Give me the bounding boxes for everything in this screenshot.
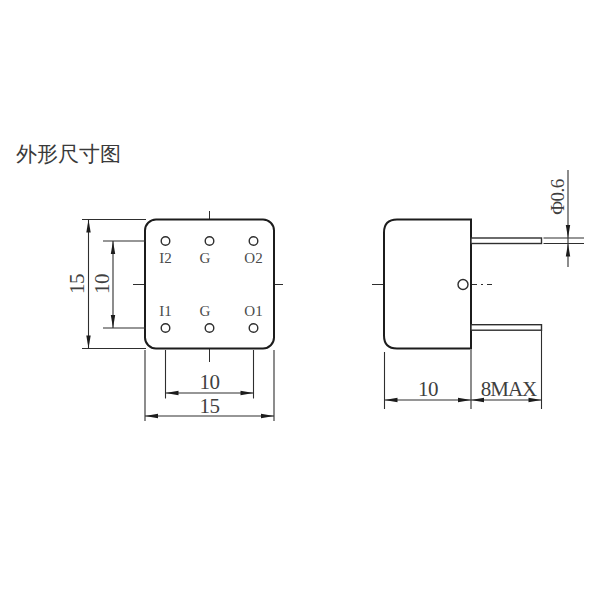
top-lead bbox=[471, 238, 542, 244]
arrowhead-up bbox=[566, 244, 570, 257]
dimension-value: 10 bbox=[200, 370, 220, 394]
arrowhead-right bbox=[261, 414, 274, 418]
side-view: Φ0.6 10 8MAX bbox=[372, 170, 584, 409]
dimension-drawing: 外形尺寸图 I2 G O2 I1 G O1 15 bbox=[0, 0, 600, 600]
centerline-index-hole bbox=[458, 280, 468, 290]
page-title: 外形尺寸图 bbox=[16, 142, 121, 166]
dimension-value-lead-length: 8MAX bbox=[481, 377, 537, 401]
arrowhead-down bbox=[86, 336, 90, 349]
dimension-value: 15 bbox=[65, 274, 89, 294]
drawing-page: 外形尺寸图 I2 G O2 I1 G O1 15 bbox=[0, 0, 600, 600]
arrowhead-right bbox=[458, 398, 471, 402]
dimension-value: Φ0.6 bbox=[547, 179, 568, 215]
pin-hole-o1 bbox=[249, 324, 258, 333]
top-view: I2 G O2 I1 G O1 15 10 bbox=[65, 211, 283, 421]
arrowhead-left bbox=[385, 398, 398, 402]
arrowhead-up bbox=[111, 241, 115, 254]
dimension-lead-diameter: Φ0.6 bbox=[544, 170, 585, 267]
arrowhead-down bbox=[111, 315, 115, 328]
pin-hole-g-top bbox=[205, 237, 214, 246]
pin-hole-g-bottom bbox=[205, 324, 214, 333]
pin-label-o2: O2 bbox=[244, 250, 262, 266]
pin-label-i1: I1 bbox=[159, 303, 172, 319]
pin-label-i2: I2 bbox=[159, 250, 172, 266]
pin-label-o1: O1 bbox=[244, 303, 262, 319]
pin-hole-i2 bbox=[161, 237, 170, 246]
pin-label-g-top: G bbox=[200, 250, 211, 266]
dimension-value-body-depth: 10 bbox=[418, 377, 438, 401]
dimension-value: 15 bbox=[200, 394, 220, 418]
dimension-value: 10 bbox=[90, 274, 114, 294]
bottom-lead bbox=[471, 325, 542, 331]
arrowhead-right bbox=[241, 391, 254, 395]
pin-hole-o2 bbox=[249, 237, 258, 246]
arrowhead-left bbox=[166, 391, 179, 395]
pin-hole-i1 bbox=[161, 324, 170, 333]
arrowhead-left bbox=[145, 414, 158, 418]
arrowhead-up bbox=[86, 220, 90, 233]
arrowhead-down bbox=[566, 225, 570, 238]
pin-label-g-bottom: G bbox=[200, 303, 211, 319]
